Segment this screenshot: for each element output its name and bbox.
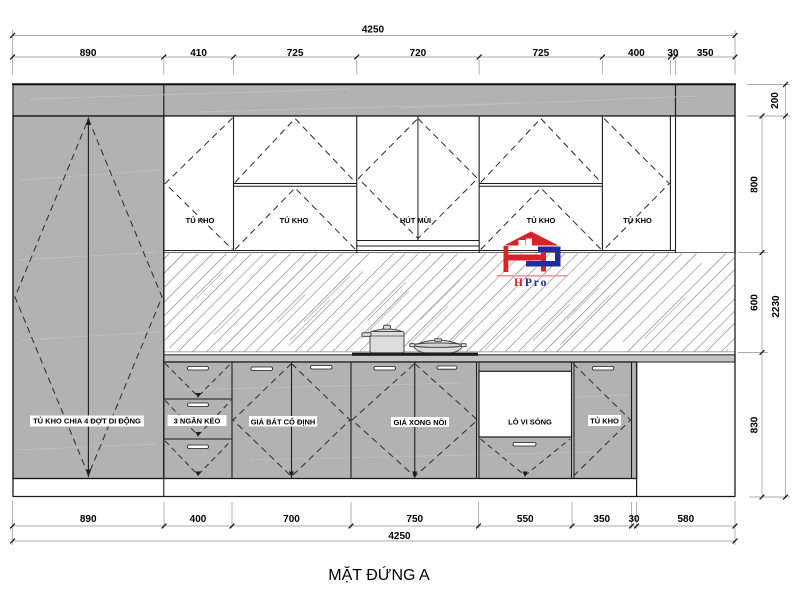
svg-text:TỦ KHO: TỦ KHO — [527, 216, 556, 225]
svg-text:TỦ KHO: TỦ KHO — [623, 216, 652, 225]
svg-text:830: 830 — [750, 416, 761, 433]
svg-text:400: 400 — [628, 48, 645, 59]
svg-text:4250: 4250 — [362, 25, 385, 36]
svg-text:MẶT ĐỨNG A: MẶT ĐỨNG A — [328, 565, 430, 584]
svg-text:30: 30 — [628, 514, 640, 525]
svg-text:890: 890 — [80, 514, 97, 525]
svg-text:2230: 2230 — [771, 295, 782, 318]
svg-text:550: 550 — [517, 514, 534, 525]
svg-text:3 NGĂN KÉO: 3 NGĂN KÉO — [174, 417, 221, 426]
svg-text:TỦ KHO: TỦ KHO — [590, 417, 619, 426]
svg-text:580: 580 — [677, 514, 694, 525]
svg-text:LÒ VI SÓNG: LÒ VI SÓNG — [508, 418, 552, 427]
svg-text:TỦ KHO: TỦ KHO — [186, 216, 215, 225]
svg-text:350: 350 — [593, 514, 610, 525]
svg-text:30: 30 — [667, 48, 679, 59]
svg-text:HPro: HPro — [514, 277, 548, 289]
svg-text:HÚT MÙI: HÚT MÙI — [400, 216, 431, 225]
svg-text:700: 700 — [283, 514, 300, 525]
svg-text:725: 725 — [287, 48, 304, 59]
svg-text:750: 750 — [406, 514, 423, 525]
svg-text:800: 800 — [750, 176, 761, 193]
svg-text:GIÁ XONG NỒI: GIÁ XONG NỒI — [394, 417, 447, 427]
svg-text:GIÁ BÁT CỐ ĐỊNH: GIÁ BÁT CỐ ĐỊNH — [251, 417, 316, 427]
svg-text:410: 410 — [190, 48, 207, 59]
svg-text:400: 400 — [190, 514, 207, 525]
svg-text:890: 890 — [80, 48, 97, 59]
svg-text:TỦ KHO CHIA 4 ĐỢT DI ĐỘNG: TỦ KHO CHIA 4 ĐỢT DI ĐỘNG — [33, 417, 141, 426]
svg-text:725: 725 — [532, 48, 549, 59]
svg-text:4250: 4250 — [388, 531, 411, 542]
svg-text:720: 720 — [410, 48, 427, 59]
svg-text:350: 350 — [697, 48, 714, 59]
svg-text:TỦ KHO: TỦ KHO — [280, 216, 309, 225]
svg-text:600: 600 — [750, 294, 761, 311]
svg-text:200: 200 — [770, 92, 781, 109]
